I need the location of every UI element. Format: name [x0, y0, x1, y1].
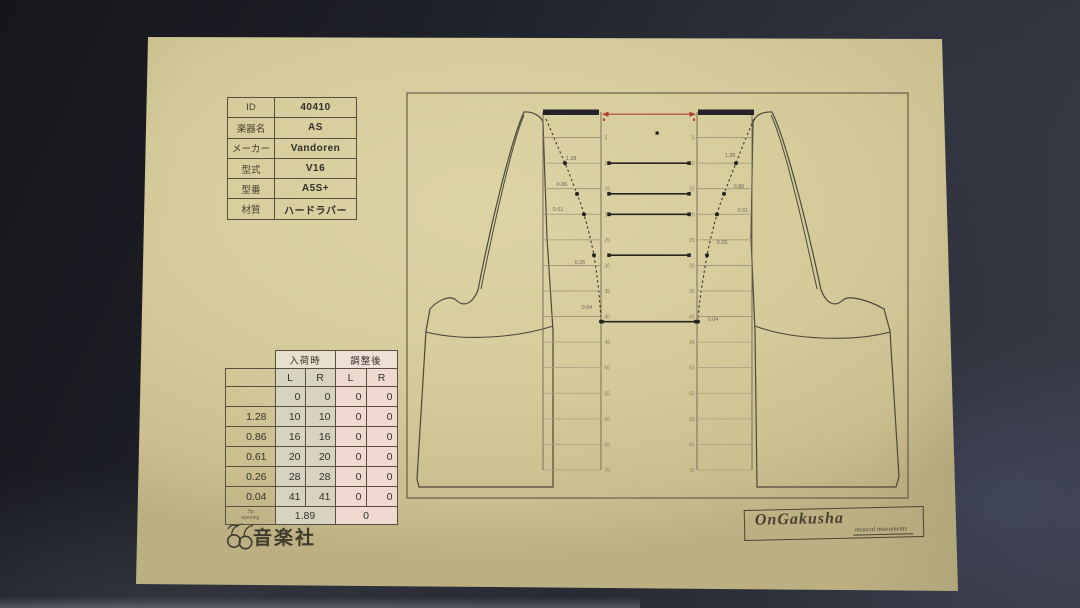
- id-row-value: Vandoren: [275, 138, 357, 158]
- adjusted-l: 0: [335, 407, 366, 427]
- gauge-label: 0.26: [226, 467, 276, 487]
- gauge-label: 0.04: [226, 487, 276, 507]
- id-row-label: 材質: [228, 199, 275, 219]
- id-row-label: ID: [228, 98, 275, 118]
- stamp-name: OnGakusha: [755, 510, 844, 530]
- gauge-label: 1.28: [226, 407, 276, 427]
- id-row-value: V16: [275, 158, 357, 178]
- id-table-row: 楽器名 AS: [228, 118, 357, 138]
- arrival-l: 28: [275, 467, 305, 487]
- arrival-r: 16: [305, 427, 335, 447]
- arrival-l: 0: [275, 387, 305, 407]
- id-row-label: 型番: [228, 179, 275, 199]
- id-row-label: 楽器名: [228, 118, 275, 138]
- id-row-label: メーカー: [228, 138, 275, 158]
- tip-opening-adjusted: 0: [335, 507, 397, 525]
- arrival-r: 28: [305, 467, 335, 487]
- id-row-label: 型式: [228, 158, 275, 178]
- adjusted-l: 0: [335, 487, 366, 507]
- tip-opening-arrival: 1.89: [275, 507, 335, 525]
- arrival-r: 41: [305, 487, 335, 507]
- measurement-row: 1.28 10 10 0 0: [226, 407, 398, 427]
- arrival-l: 41: [275, 487, 305, 507]
- header-adjusted: 調整後: [335, 351, 397, 369]
- gauge-label: 0.61: [226, 447, 276, 467]
- id-row-value: 40410: [275, 98, 357, 118]
- row-label-cell: [226, 369, 276, 387]
- id-table-row: ID 40410: [228, 98, 357, 118]
- subheader-arrival-L: L: [275, 369, 305, 387]
- stamp-subtitle: musical instruments: [853, 525, 913, 535]
- ongakusha-logo-text: 音楽社: [253, 523, 316, 550]
- adjusted-r: 0: [366, 487, 397, 507]
- measurement-row: 0.86 16 16 0 0: [226, 427, 398, 447]
- gauge-label: [226, 387, 276, 407]
- arrival-l: 16: [275, 427, 305, 447]
- id-table-row: メーカー Vandoren: [228, 138, 357, 158]
- id-table-row: 型番 A5S+: [228, 179, 357, 199]
- subheader-adjusted-L: L: [335, 369, 366, 387]
- subheader-adjusted-R: R: [366, 369, 397, 387]
- subheader-arrival-R: R: [305, 369, 335, 387]
- arrival-l: 20: [275, 447, 305, 467]
- adjusted-l: 0: [335, 427, 366, 447]
- tip-opening-label: Tipopening: [226, 507, 276, 525]
- adjusted-r: 0: [366, 467, 397, 487]
- id-table: ID 40410楽器名 ASメーカー Vandoren型式 V16型番 A5S+…: [227, 97, 357, 220]
- id-table-row: 材質 ハードラバー: [228, 199, 357, 219]
- measurement-row: 0 0 0 0: [226, 387, 398, 407]
- measurement-table: 入荷時 調整後LRLR 0 0 0 01.28 10 10 0 00.86 16…: [225, 350, 398, 525]
- gauge-label: 0.86: [226, 427, 276, 447]
- ongakusha-stamp: OnGakusha musical instruments: [744, 506, 925, 541]
- photo-of-measurement-sheet: 5510101515202025253030353540404545505055…: [0, 0, 1080, 608]
- adjusted-r: 0: [366, 427, 397, 447]
- header-arrival: 入荷時: [275, 351, 335, 369]
- measurement-row: 0.26 28 28 0 0: [226, 467, 398, 487]
- id-row-value: A5S+: [275, 179, 357, 199]
- adjusted-r: 0: [366, 387, 397, 407]
- adjusted-l: 0: [335, 387, 366, 407]
- adjusted-r: 0: [366, 447, 397, 467]
- arrival-l: 10: [275, 407, 305, 427]
- arrival-r: 10: [305, 407, 335, 427]
- adjusted-r: 0: [366, 407, 397, 427]
- arrival-r: 0: [305, 387, 335, 407]
- adjusted-l: 0: [335, 467, 366, 487]
- adjusted-l: 0: [335, 447, 366, 467]
- id-row-value: AS: [275, 118, 357, 138]
- id-row-value: ハードラバー: [275, 199, 357, 219]
- measurement-row: 0.04 41 41 0 0: [226, 487, 398, 507]
- id-table-row: 型式 V16: [228, 158, 357, 178]
- measurement-row: 0.61 20 20 0 0: [226, 447, 398, 467]
- arrival-r: 20: [305, 447, 335, 467]
